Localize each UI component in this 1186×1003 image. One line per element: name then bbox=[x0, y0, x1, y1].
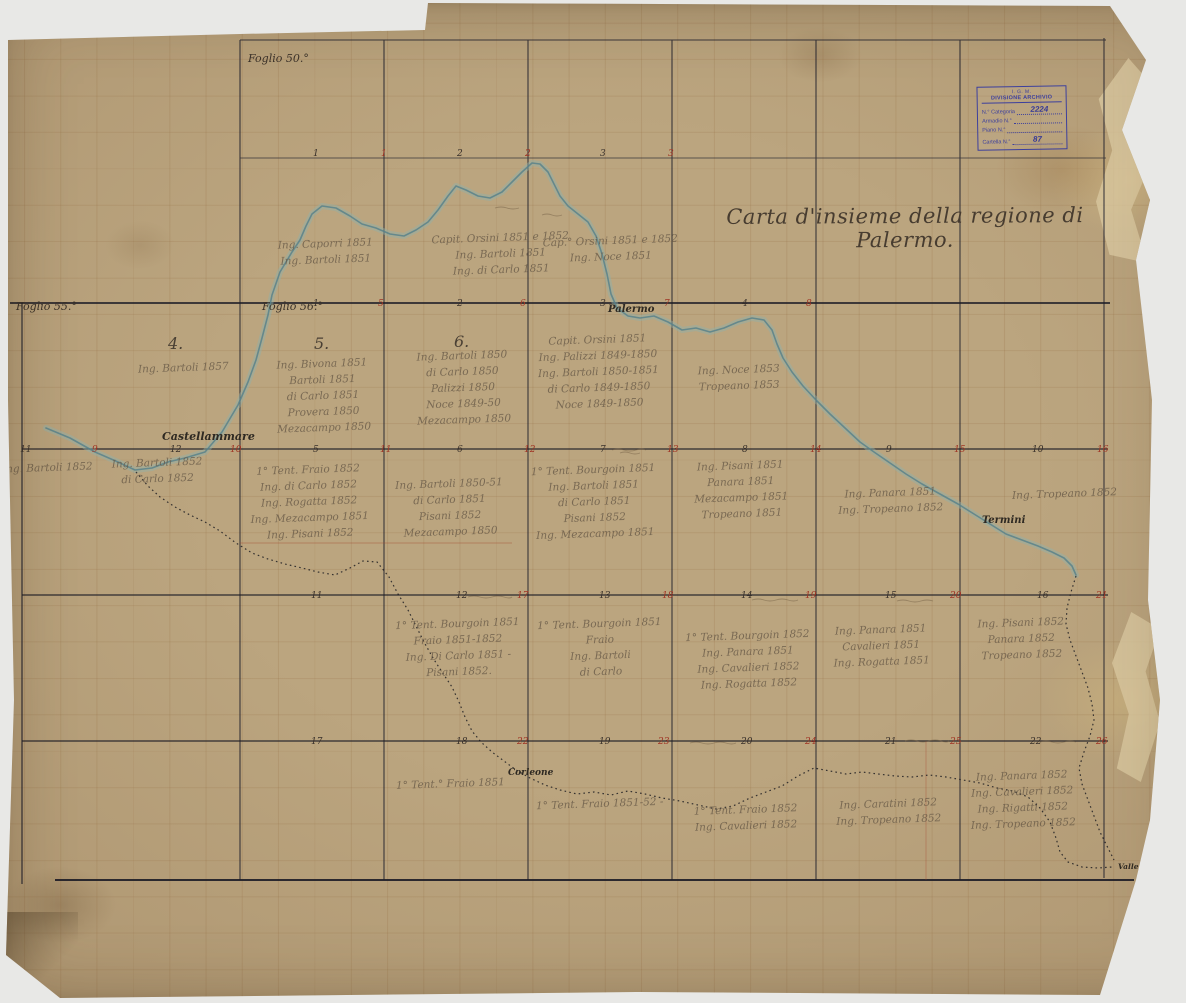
place-label: Castellammare bbox=[162, 430, 255, 443]
grid-number-red: 20 bbox=[950, 591, 961, 601]
grid-number-black: 12 bbox=[170, 445, 181, 455]
survey-annotation: Ing. Panara 1852Ing. Cavalieri 1852Ing. … bbox=[969, 766, 1076, 834]
grid-number-black: 8 bbox=[742, 445, 748, 455]
survey-annotation: Cap.° Orsini 1851 e 1852Ing. Noce 1851 bbox=[542, 231, 678, 268]
survey-annotation: Ing. Tropeano 1852 bbox=[1012, 484, 1117, 504]
place-label: Termini bbox=[982, 515, 1025, 526]
survey-annotation: 1° Tent. Bourgoin 1851FraioIng. Bartolid… bbox=[537, 614, 664, 682]
place-label: Palermo bbox=[608, 304, 654, 315]
stamp-label: Piano N.° bbox=[982, 127, 1005, 133]
survey-annotation: Ing. Caporri 1851Ing. Bartoli 1851 bbox=[277, 234, 373, 269]
place-label: Valle dell'Oreto bbox=[1118, 862, 1183, 871]
place-labels-layer: CastellammarePalermoTerminiCorleoneValle… bbox=[0, 0, 1186, 1003]
archive-stamp: I. G. M. DIVISIONE ARCHIVIO N.° Categori… bbox=[976, 85, 1067, 151]
stamp-value bbox=[1008, 131, 1063, 133]
stamp-label: Cartella N.° bbox=[982, 139, 1010, 145]
grid-number-black: 6 bbox=[457, 445, 463, 455]
grid-number-red: 8 bbox=[806, 299, 812, 309]
survey-annotation: Ing. Bartoli 1852di Carlo 1852 bbox=[111, 453, 203, 488]
grid-numbers-black-layer: 1231234111256789101112131415161718192021… bbox=[0, 0, 1186, 1003]
grid-number-red: 25 bbox=[950, 737, 961, 747]
grid-number-red: 22 bbox=[517, 737, 528, 747]
grid-number-black: 7 bbox=[600, 445, 606, 455]
scanned-map: Foglio 50.°Foglio 55.°Foglio 56.° Castel… bbox=[0, 0, 1186, 1003]
grid-number-black: 4 bbox=[742, 299, 748, 309]
grid-number-black: 19 bbox=[599, 737, 610, 747]
grid-number-red: 17 bbox=[517, 591, 528, 601]
survey-annotation: Ing. Noce 1853Tropeano 1853 bbox=[697, 361, 780, 396]
sheet-label: Foglio 56.° bbox=[262, 300, 323, 313]
stamp-row-cartella: Cartella N.° 87 bbox=[982, 135, 1062, 145]
sheet-labels-layer: Foglio 50.°Foglio 55.°Foglio 56.° bbox=[0, 0, 1186, 1003]
sheet-label: Foglio 55.° bbox=[16, 300, 77, 313]
stamp-label: N.° Categoria bbox=[982, 109, 1015, 116]
grid-number-black: 5 bbox=[313, 445, 319, 455]
grid-number-black: 14 bbox=[741, 591, 752, 601]
grid-number-black: 1 bbox=[313, 149, 319, 159]
pencil-micro-notes bbox=[468, 207, 1076, 744]
grid-number-red: 3 bbox=[668, 149, 674, 159]
grid-number-red: 7 bbox=[664, 299, 670, 309]
grid-number-black: 3 bbox=[600, 149, 606, 159]
grid-number-red: 11 bbox=[380, 445, 391, 455]
grid-number-red: 21 bbox=[1096, 591, 1107, 601]
place-label: Corleone bbox=[508, 768, 553, 778]
grid-number-black: 17 bbox=[311, 737, 322, 747]
pencil-annotations-layer: Ing. Caporri 1851Ing. Bartoli 1851Capit.… bbox=[0, 0, 1186, 1003]
survey-annotation: 1° Tent. Bourgoin 1851Fraio 1851-1852Ing… bbox=[395, 614, 522, 682]
torn-edge bbox=[1112, 612, 1160, 782]
grid-number-black: 11 bbox=[20, 445, 31, 455]
survey-annotation: 1° Tent. Fraio 1852Ing. Cavalieri 1852 bbox=[693, 800, 798, 836]
grid-number-red: 9 bbox=[92, 445, 98, 455]
grid-number-black: 15 bbox=[885, 591, 896, 601]
grid-number-red: 10 bbox=[230, 445, 241, 455]
grid-number-black: 2 bbox=[457, 149, 463, 159]
survey-annotation: 1° Tent. Fraio 1852Ing. di Carlo 1852Ing… bbox=[249, 460, 370, 544]
quadrant-number: 6. bbox=[454, 332, 469, 351]
survey-annotation: Ing. Bartoli 1857 bbox=[138, 358, 229, 377]
stamp-label: Armadio N.° bbox=[982, 118, 1012, 125]
survey-annotation: Ing. Caratini 1852Ing. Tropeano 1852 bbox=[835, 794, 941, 830]
quadrant-number: 5. bbox=[314, 334, 329, 353]
survey-annotation: 1° Tent. Fraio 1851-52 - bbox=[536, 794, 664, 814]
survey-annotation: 1° Tent. Bourgoin 1851Ing. Bartoli 1851d… bbox=[531, 460, 658, 544]
grid-number-red: 5 bbox=[378, 299, 384, 309]
grid-number-red: 12 bbox=[524, 445, 535, 455]
stamp-row-piano: Piano N.° bbox=[982, 126, 1062, 133]
grid-number-black: 21 bbox=[885, 737, 896, 747]
grid-number-red: 14 bbox=[810, 445, 821, 455]
survey-annotation: Ing. Bivona 1851Bartoli 1851di Carlo 185… bbox=[275, 354, 372, 437]
grid-number-red: 19 bbox=[805, 591, 816, 601]
torn-edge bbox=[1096, 58, 1150, 263]
stamp-value bbox=[1014, 122, 1062, 124]
grid-number-black: 2 bbox=[457, 299, 463, 309]
survey-annotation: 1° Tent.° Fraio 1851 bbox=[396, 774, 505, 794]
stamp-value: 2224 bbox=[1017, 105, 1062, 115]
grid-number-black: 20 bbox=[741, 737, 752, 747]
survey-annotation: Ing. Bartoli 1850-51di Carlo 1851Pisani … bbox=[395, 474, 505, 542]
grid-number-red: 6 bbox=[520, 299, 526, 309]
grid-number-red: 15 bbox=[954, 445, 965, 455]
grid-and-coast-lines bbox=[0, 0, 1186, 1003]
survey-annotation: Ing. Panara 1851Cavalieri 1851Ing. Rogat… bbox=[832, 620, 930, 671]
grid-number-red: 1 bbox=[381, 149, 387, 159]
grid-number-red: 26 bbox=[1096, 737, 1107, 747]
grid-number-red: 2 bbox=[525, 149, 531, 159]
survey-annotation: Capit. Orsini 1851Ing. Palizzi 1849-1850… bbox=[537, 330, 661, 414]
grid-number-red: 23 bbox=[658, 737, 669, 747]
grid-number-black: 9 bbox=[886, 445, 892, 455]
grid-number-red: 13 bbox=[667, 445, 678, 455]
grid-number-black: 10 bbox=[1032, 445, 1043, 455]
grid-number-black: 22 bbox=[1030, 737, 1041, 747]
corner-fold bbox=[0, 912, 78, 1003]
grid-numbers-red-layer: 1235678910111213141516171819202122232425… bbox=[0, 0, 1186, 1003]
survey-annotation: Ing. Pisani 1851Panara 1851Mezacampo 185… bbox=[693, 456, 789, 523]
grid-number-black: 1 bbox=[313, 299, 319, 309]
quadrant-numbers-layer: 4.5.6. bbox=[0, 0, 1186, 1003]
grid-number-red: 24 bbox=[805, 737, 816, 747]
map-sheet: Foglio 50.°Foglio 55.°Foglio 56.° Castel… bbox=[0, 0, 1186, 1003]
stamp-division: DIVISIONE ARCHIVIO bbox=[982, 94, 1062, 103]
stamp-row-categoria: N.° Categoria 2224 bbox=[982, 105, 1062, 115]
survey-annotation: Ing. Panara 1851Ing. Tropeano 1852 bbox=[837, 483, 943, 519]
grid-number-black: 3 bbox=[600, 299, 606, 309]
quadrant-number: 4. bbox=[168, 334, 183, 353]
grid-number-black: 13 bbox=[599, 591, 610, 601]
grid-number-black: 16 bbox=[1037, 591, 1048, 601]
survey-annotation: 1° Tent. Bourgoin 1852Ing. Panara 1851In… bbox=[685, 626, 812, 694]
coastline bbox=[46, 163, 1076, 575]
stamp-row-armadio: Armadio N.° bbox=[982, 117, 1062, 124]
survey-annotation: Ing. Bartoli 1850di Carlo 1850Palizzi 18… bbox=[415, 346, 512, 429]
grid-number-red: 16 bbox=[1097, 445, 1108, 455]
sheet-label: Foglio 50.° bbox=[248, 52, 309, 65]
grid-number-black: 12 bbox=[456, 591, 467, 601]
stamp-institution: I. G. M. bbox=[982, 88, 1062, 95]
survey-annotation: Ing. Pisani 1852Panara 1852Tropeano 1852 bbox=[977, 614, 1065, 665]
boundary-dashed-line bbox=[136, 472, 1114, 868]
grid-number-black: 18 bbox=[456, 737, 467, 747]
survey-annotation: Capit. Orsini 1851 e 1852Ing. Bartoli 18… bbox=[431, 228, 570, 281]
grid-number-red: 18 bbox=[662, 591, 673, 601]
stamp-value: 87 bbox=[1013, 135, 1063, 145]
map-title: Carta d'insieme della regione di Palermo… bbox=[698, 203, 1112, 253]
survey-annotation: Ing. Bartoli 1852 bbox=[2, 458, 93, 477]
grid-number-black: 11 bbox=[311, 591, 322, 601]
